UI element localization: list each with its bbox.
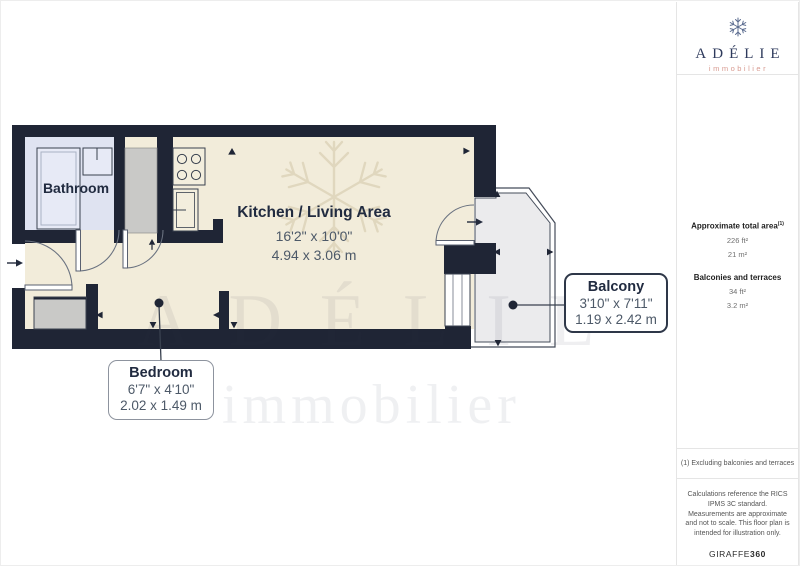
balcony-label: Balcony [566, 279, 666, 296]
balcony-label-box: Balcony 3'10" x 7'11" 1.19 x 2.42 m [564, 273, 668, 333]
provider-logo: GIRAFFE360 [684, 549, 791, 561]
total-area-metric: 21 m² [677, 250, 798, 259]
total-area-label: Approximate total area(1) [677, 221, 798, 231]
area-footnote: (1) Excluding balconies and terraces [677, 449, 798, 479]
balcony-size-imperial: 3'10" x 7'11" [566, 296, 666, 312]
balcony-size-metric: 1.19 x 2.42 m [566, 312, 666, 328]
provider-name: GIRAFFE [709, 549, 750, 559]
balconies-area-label: Balconies and terraces [677, 273, 798, 282]
disclaimer-text: Calculations reference the RICS IPMS 3C … [684, 490, 791, 539]
brand-name: ADÉLIE [677, 46, 798, 63]
balconies-area-metric: 3.2 m² [677, 301, 798, 310]
snowflake-logo-icon [727, 16, 749, 38]
bedroom-size-metric: 2.02 x 1.49 m [109, 398, 213, 414]
provider-suffix: 360 [750, 549, 766, 559]
bedroom-size-imperial: 6'7" x 4'10" [109, 382, 213, 398]
total-area-imperial: 226 ft² [677, 236, 798, 245]
floorplan-canvas: ADÉLIE immobilier Bathroom Kitchen / Liv… [1, 1, 676, 566]
total-area-footnote-marker: (1) [778, 221, 784, 227]
bedroom-label-box: Bedroom 6'7" x 4'10" 2.02 x 1.49 m [108, 360, 214, 420]
total-area-label-text: Approximate total area [691, 222, 778, 231]
kitchen-living-size-imperial: 16'2" x 10'0" [209, 228, 419, 244]
balconies-area-imperial: 34 ft² [677, 287, 798, 296]
area-summary: Approximate total area(1) 226 ft² 21 m² … [677, 75, 798, 449]
info-sidebar: ADÉLIE immobilier Approximate total area… [676, 2, 799, 565]
brand-tagline: immobilier [677, 64, 798, 73]
kitchen-living-label: Kitchen / Living Area [209, 204, 419, 222]
floorplan-page: ADÉLIE immobilier Bathroom Kitchen / Liv… [0, 0, 800, 566]
kitchen-living-label-block: Kitchen / Living Area 16'2" x 10'0" 4.94… [209, 204, 419, 263]
kitchen-living-size-metric: 4.94 x 3.06 m [209, 247, 419, 263]
brand-logo: ADÉLIE immobilier [677, 2, 798, 75]
bathroom-label: Bathroom [24, 180, 128, 196]
bedroom-label: Bedroom [109, 365, 213, 382]
disclaimer-section: Calculations reference the RICS IPMS 3C … [677, 479, 798, 561]
